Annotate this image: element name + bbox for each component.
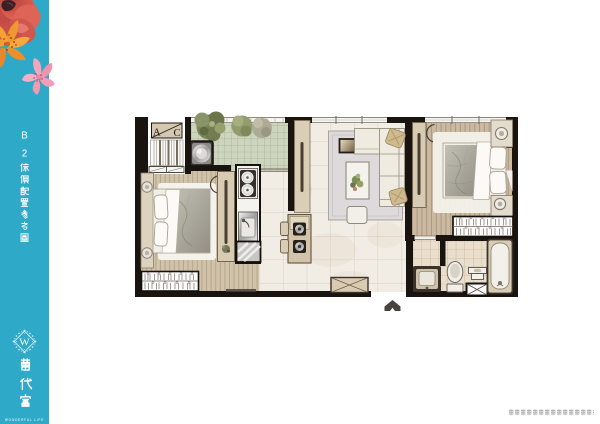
svg-text:C: C xyxy=(174,128,181,139)
svg-text:A: A xyxy=(153,128,161,139)
